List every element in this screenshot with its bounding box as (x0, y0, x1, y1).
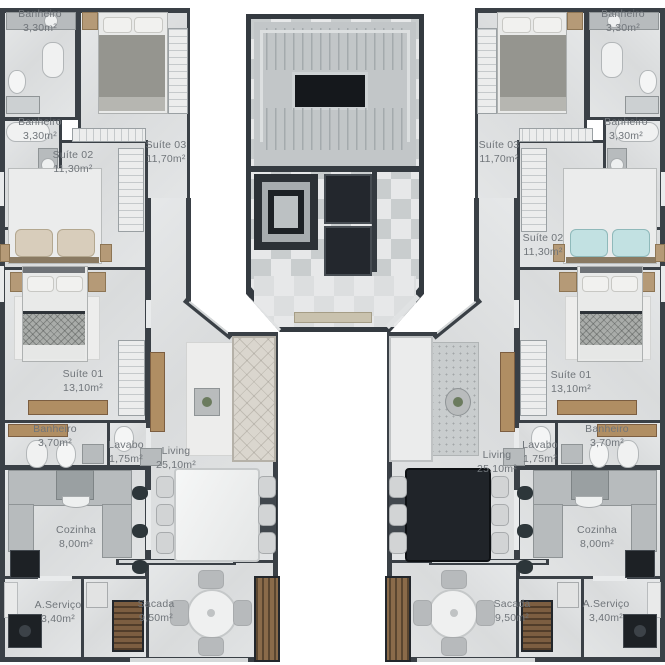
label-sacada-right: Sacada9,50m² (464, 598, 560, 625)
label-suite02-right: Suíte 0211,30m² (495, 232, 591, 259)
label-suite03-right: Suíte 0311,70m² (451, 139, 547, 166)
room-labels: Banheiro3,30m² Banheiro3,30m² Suíte 0211… (0, 0, 665, 665)
label-living-left: Living25,10m² (128, 445, 224, 472)
label-banheiro-top-right: Banheiro3,30m² (575, 8, 665, 35)
label-servico-right: A.Serviço3,40m² (558, 598, 654, 625)
label-banheiro-top-left: Banheiro3,30m² (0, 8, 88, 35)
label-suite01-left: Suíte 0113,10m² (35, 368, 131, 395)
label-suite01-right: Suíte 0113,10m² (523, 369, 619, 396)
label-sacada-left: Sacada9,50m² (108, 598, 204, 625)
label-cozinha-left: Cozinha8,00m² (28, 524, 124, 551)
label-cozinha-right: Cozinha8,00m² (549, 524, 645, 551)
floor-plan-canvas: Banheiro3,30m² Banheiro3,30m² Suíte 0211… (0, 0, 665, 665)
label-living-right: Living25,10m² (449, 449, 545, 476)
label-suite03-left: Suíte 0311,70m² (118, 139, 214, 166)
label-servico-left: A.Serviço3,40m² (10, 599, 106, 626)
label-banheiro-mid-right: Banheiro3,30m² (578, 116, 665, 143)
label-suite02-left: Suíte 0211,30m² (25, 149, 121, 176)
label-banheiro-mid-left: Banheiro3,30m² (0, 116, 88, 143)
